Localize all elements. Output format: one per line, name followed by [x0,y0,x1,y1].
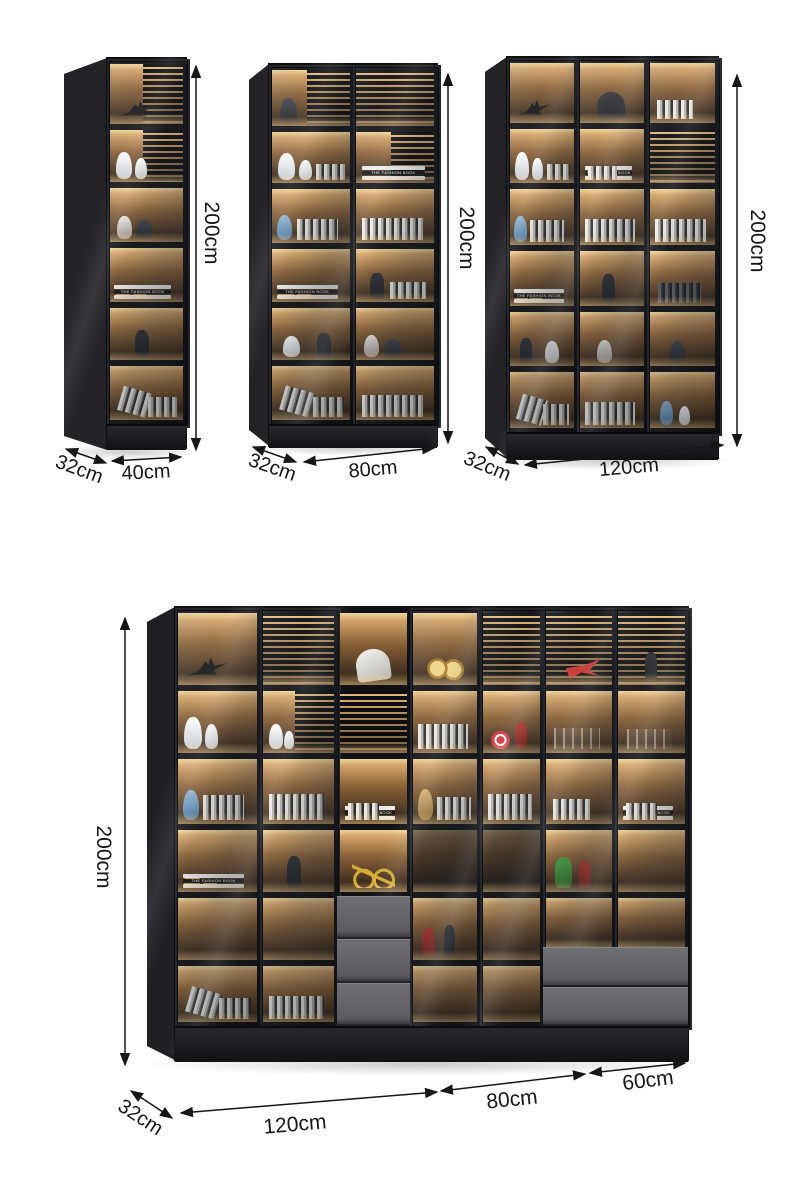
shelf-bay [340,691,407,753]
label-width-120cm: 120cm [598,454,660,482]
drawer-front [337,983,410,1026]
drawer-front [543,947,688,987]
cabinet-plinth [107,424,186,450]
product-dimension-diagram: THE FASHION BOOKTHE FASHION BOOKTHE FASH… [0,0,790,1186]
sculpt-item [354,647,392,683]
drawer-stack [543,947,688,1026]
glass-door [107,59,190,428]
label-width-combo-120: 120cm [263,1110,328,1139]
drawer-front [543,987,688,1027]
label-width-40cm: 40cm [121,460,171,486]
drawer-front [337,939,410,982]
shelf-bay [340,613,407,685]
cabinet-plinth [269,424,437,448]
cabinet-80cm: THE FASHION BOOKTHE FASHION BOOK [269,64,437,446]
cabinet-combination: THE FASHION BOOKTHE FASHION BOOKTHE FASH… [175,607,688,1060]
cabinet-plinth [507,432,718,460]
label-height-40cm: 200cm [199,201,223,264]
arrow-width-combo-120 [181,1092,437,1113]
glass-door [260,608,341,1030]
cabinet-40cm: THE FASHION BOOK [107,58,186,448]
label-depth-80cm: 32cm [245,449,299,487]
book-stack-bar: THE FASHION BOOK [345,811,395,815]
label-height-combo: 200cm [91,825,115,888]
label-height-80cm: 200cm [454,206,478,269]
cabinet-120cm: THE FASHION BOOKTHE FASHION BOOK [507,57,718,458]
label-width-combo-80: 80cm [485,1085,539,1114]
drawer-stack [337,896,410,1026]
glass-door [353,65,441,428]
label-depth-combo: 32cm [113,1095,167,1141]
books-item [348,803,379,820]
slats-item [340,691,407,753]
book-stack-bar [345,816,395,820]
drawer-front [337,896,410,939]
label-width-combo-60: 60cm [621,1066,675,1096]
glass-door [647,58,722,436]
label-height-120cm: 200cm [745,209,769,272]
label-width-80cm: 80cm [348,456,399,483]
cabinet-plinth [175,1026,688,1062]
